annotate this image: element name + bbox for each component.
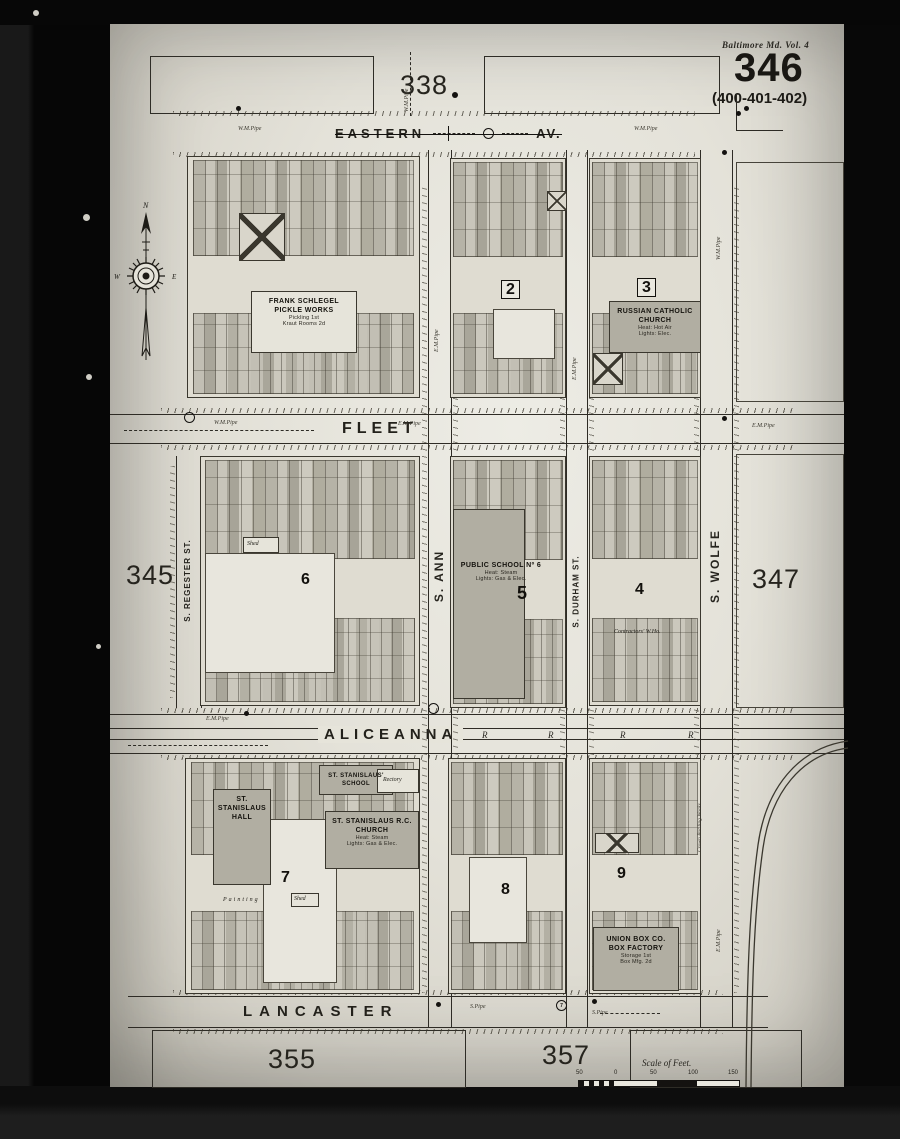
russian-church-label: Russian Catholic Church Heat: Hot Air Li… xyxy=(609,307,701,337)
block-number-5: 5 xyxy=(517,583,527,604)
scale-segment xyxy=(617,1081,657,1086)
survey-dot xyxy=(736,111,741,116)
compass-east-letter: E xyxy=(171,273,177,281)
contractors-warehouse-label: Contractors' W.Ho. xyxy=(614,629,661,635)
scale-segment xyxy=(579,1081,617,1086)
stanislaus-church-label: St. Stanislaus R.C. Church Heat: Steam L… xyxy=(325,817,419,847)
street-continuation-dash xyxy=(410,52,411,116)
adjacent-sheet-bottom-left: 355 xyxy=(268,1044,316,1075)
street-label-lancaster: LANCASTER xyxy=(243,1003,399,1020)
scale-tick: 0 xyxy=(614,1070,617,1076)
film-speck xyxy=(33,10,39,16)
compass-west-letter: W xyxy=(114,273,121,281)
block-number-7: 7 xyxy=(281,869,290,887)
film-border-right xyxy=(843,0,900,1139)
intersection-marker-icon xyxy=(184,412,195,423)
survey-dot xyxy=(722,416,727,421)
survey-dot xyxy=(244,711,249,716)
scale-title: Scale of Feet. xyxy=(642,1058,691,1068)
intersection-marker-icon xyxy=(483,128,494,139)
railroad-letter: R xyxy=(620,730,626,740)
street-label-s-durham-wrap: S. DURHAM ST. xyxy=(564,536,588,646)
street-eastern-av: EASTERN AV. xyxy=(130,118,738,150)
corner-index-line xyxy=(736,94,783,131)
public-school-label: Public School Nº 6 Heat: Steam Lights: G… xyxy=(445,561,557,582)
adjacent-sheet-bottom-right: 357 xyxy=(542,1040,590,1071)
street-dash xyxy=(128,745,268,746)
film-border-top xyxy=(0,0,900,25)
city-block-3: Russian Catholic Church Heat: Hot Air Li… xyxy=(589,158,701,398)
pipe-annotation: E.M.Pipe xyxy=(434,329,440,352)
shed-label: Shed xyxy=(294,896,306,902)
survey-dot xyxy=(452,92,458,98)
street-dash xyxy=(600,1013,660,1014)
sheet-number: 346 xyxy=(734,46,804,91)
city-block-8: 8 xyxy=(448,758,566,994)
adjacent-block-outline xyxy=(150,56,374,114)
union-box-label: Union Box Co. Box Factory Storage 1st Bo… xyxy=(593,935,679,965)
survey-dot xyxy=(236,106,241,111)
city-block-1: Frank Schlegel Pickle Works Pickling 1st… xyxy=(187,156,420,398)
painting-shop-label: Painting xyxy=(223,897,260,903)
crown-bottling-label: Crown Bottling Works xyxy=(697,803,703,852)
vacant-lot-x xyxy=(595,833,639,853)
block-number-9: 9 xyxy=(617,865,626,883)
block-number-4: 4 xyxy=(635,581,644,599)
scale-tick: 50 xyxy=(650,1070,657,1076)
shed-label: Shed xyxy=(247,541,259,547)
survey-dot xyxy=(436,1002,441,1007)
pipe-annotation: E.M.Pipe xyxy=(752,423,775,429)
block-yard xyxy=(205,553,335,673)
hydrant-marker-icon: 7 xyxy=(556,1000,567,1011)
adjacent-block-outline xyxy=(736,162,844,402)
pipe-annotation: W.M.Pipe xyxy=(214,420,237,426)
block-number-2: 2 xyxy=(501,281,520,299)
block-number-8: 8 xyxy=(501,881,510,899)
compass-rose-icon: N W E xyxy=(112,198,184,370)
city-block-4: 4 Contractors' W.Ho. xyxy=(589,456,701,706)
survey-dot xyxy=(744,106,749,111)
street-label-s-regester-wrap: S. REGESTER ST. xyxy=(174,520,200,640)
block-number-3: 3 xyxy=(637,279,656,297)
stanislaus-hall-label: St. Stanislaus Hall xyxy=(213,795,271,822)
railroad-letter: R xyxy=(548,730,554,740)
rectory-label: Rectory xyxy=(383,777,402,783)
street-label-s-wolfe-wrap: S. WOLFE xyxy=(698,518,732,614)
survey-dot xyxy=(722,150,727,155)
pipe-annotation: W.M.Pipe xyxy=(404,89,410,112)
city-block-2: 2 xyxy=(450,158,566,398)
compass-north-letter: N xyxy=(142,201,149,210)
street-label-s-wolfe: S. WOLFE xyxy=(708,529,722,603)
vacant-lot-x xyxy=(593,353,623,385)
film-speck xyxy=(83,214,90,221)
adjacent-sheet-right: 347 xyxy=(752,564,800,595)
street-label-s-ann: S. ANN xyxy=(432,550,446,602)
sanborn-map-scan: Baltimore Md. Vol. 4 346 (400-401-402) 3… xyxy=(0,0,900,1139)
pipe-annotation: S.Pipe xyxy=(470,1004,486,1010)
pipe-annotation: W.M.Pipe xyxy=(238,126,261,132)
public-school-building xyxy=(453,509,525,699)
vacant-lot-x xyxy=(239,213,285,261)
street-dash xyxy=(124,430,314,431)
city-block-9: 9 Union Box Co. Box Factory Storage 1st … xyxy=(589,758,701,994)
pipe-annotation: E.M.Pipe xyxy=(398,421,421,427)
railroad-letter: R xyxy=(482,730,488,740)
pickle-works-label: Frank Schlegel Pickle Works Pickling 1st… xyxy=(251,297,357,327)
street-label-s-regester: S. REGESTER ST. xyxy=(183,539,192,622)
film-speck xyxy=(86,374,92,380)
film-border-left xyxy=(0,0,112,1139)
intersection-marker-icon xyxy=(428,703,439,714)
adjacent-block-outline xyxy=(484,56,720,114)
pipe-annotation: E.M.Pipe xyxy=(206,716,229,722)
pipe-annotation: W.M.Pipe xyxy=(634,126,657,132)
city-block-5: Public School Nº 6 Heat: Steam Lights: G… xyxy=(450,456,566,708)
street-label-s-durham: S. DURHAM ST. xyxy=(572,555,581,627)
pipe-annotation: E.M.Pipe xyxy=(572,357,578,380)
city-block-7: St. Stanislaus Hall St. Stanislaus' Scho… xyxy=(185,758,420,994)
block-yard xyxy=(493,309,555,359)
pipe-annotation: S.Pipe xyxy=(592,1010,608,1016)
vacant-lot-x xyxy=(547,191,567,211)
city-block-6: Shed 6 xyxy=(200,456,420,706)
adjacent-sheet-left: 345 xyxy=(126,560,174,591)
film-speck xyxy=(96,644,101,649)
scale-tick: 50 xyxy=(576,1070,583,1076)
block-yard xyxy=(469,857,527,943)
block-number-6: 6 xyxy=(301,571,310,589)
survey-dot xyxy=(592,999,597,1004)
film-border-bottom xyxy=(0,1086,900,1139)
railroad-spur-curve xyxy=(690,730,850,1090)
pipe-annotation: W.M.Pipe xyxy=(716,237,722,260)
